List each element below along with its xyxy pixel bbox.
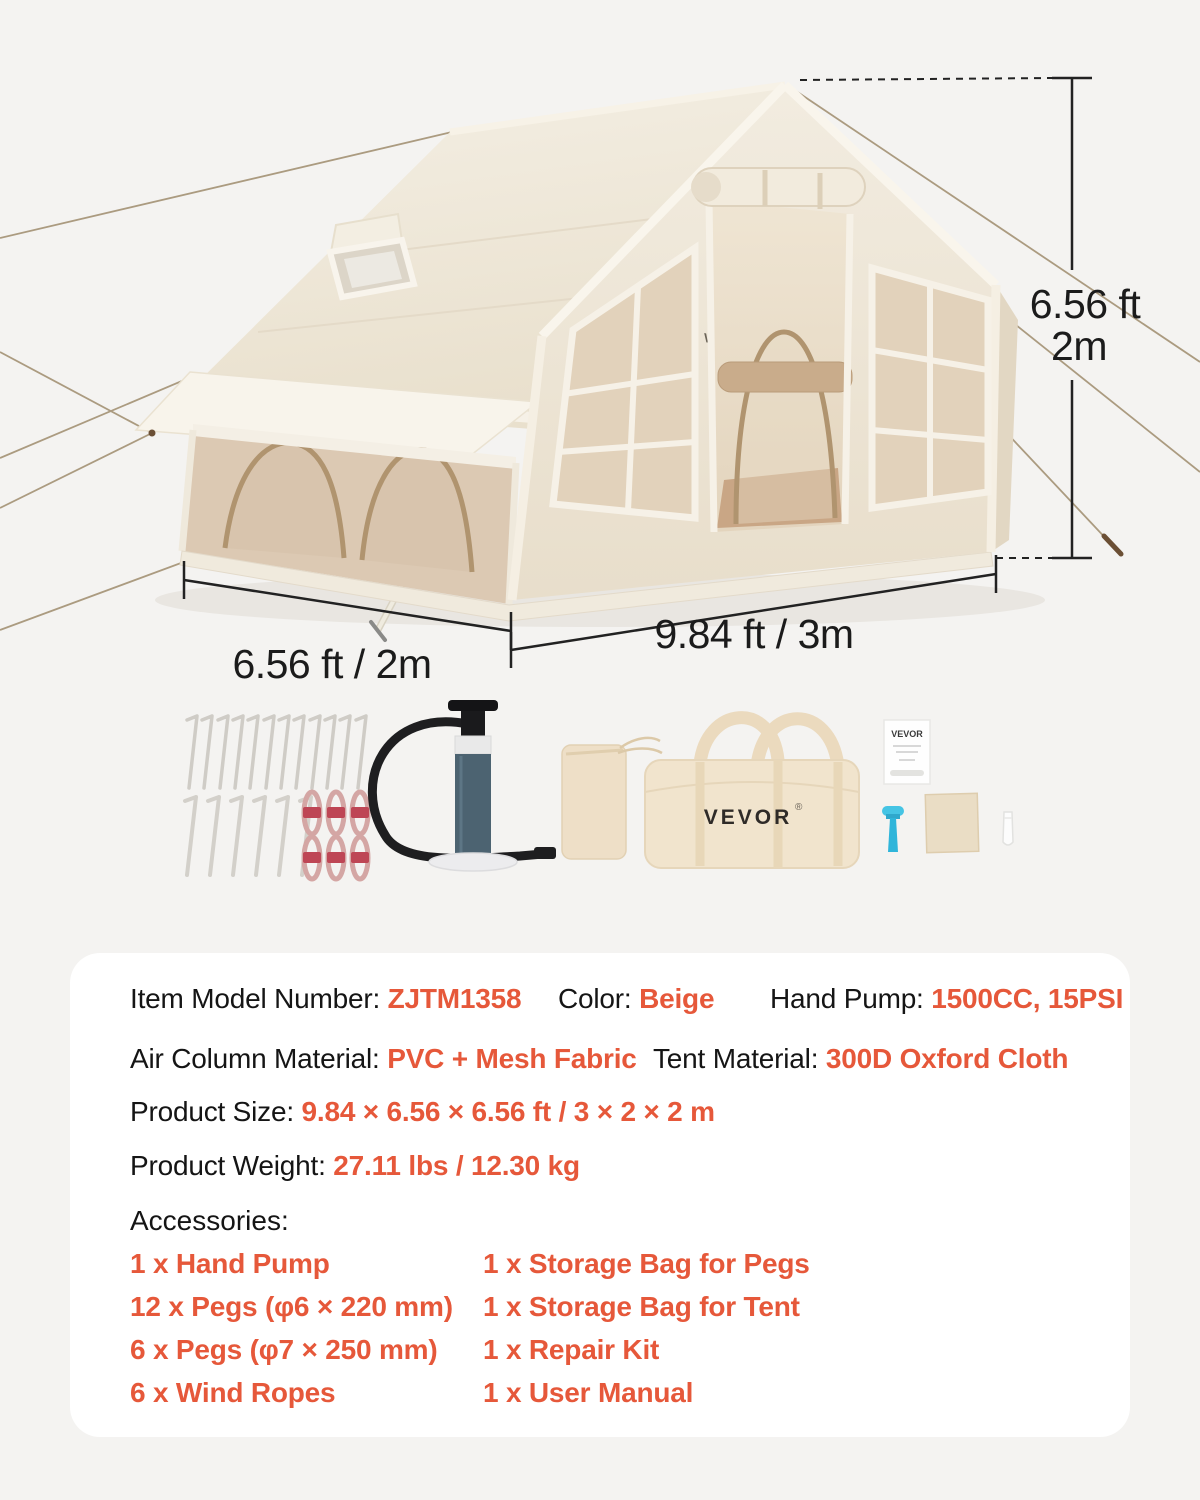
accessory-item: 1 x Storage Bag for Pegs (483, 1248, 810, 1280)
accessory-item: 12 x Pegs (φ6 × 220 mm) (130, 1291, 453, 1323)
front-label: 9.84 ft / 3m (654, 611, 853, 657)
accessory-item: 1 x User Manual (483, 1377, 693, 1409)
spec-panel: Item Model Number: ZJTM1358 Color: Beige… (70, 953, 1130, 1437)
accessory-item: 6 x Wind Ropes (130, 1377, 335, 1409)
height-label-m: 2m (1051, 323, 1107, 369)
repair-patch (925, 793, 979, 852)
accessory-item: 1 x Storage Bag for Tent (483, 1291, 800, 1323)
spec-air-column: Air Column Material: PVC + Mesh Fabric (130, 1043, 637, 1075)
wind-ropes (303, 792, 369, 879)
awning-corner-hook (149, 430, 156, 437)
manual-logo: VEVOR (891, 729, 923, 739)
spec-product-weight: Product Weight: 27.11 lbs / 12.30 kg (130, 1150, 580, 1182)
height-label-ft: 6.56 ft (1030, 281, 1142, 327)
pegs-6 (185, 797, 311, 875)
glue-applicator-stem (888, 818, 898, 852)
tent-storage-bag: VEVOR ® (645, 718, 859, 868)
front-window-right (872, 268, 988, 508)
side-label: 6.56 ft / 2m (232, 641, 431, 687)
bag-logo-reg: ® (795, 802, 803, 813)
tent-door (691, 168, 865, 532)
spec-line-3: Product Size: 9.84 × 6.56 × 6.56 ft / 3 … (70, 1096, 1130, 1132)
hand-pump (372, 700, 556, 871)
spec-color: Color: Beige (558, 983, 714, 1015)
user-manual: VEVOR (884, 720, 930, 784)
product-infographic: VEVOR (0, 0, 1200, 1500)
repair-kit (882, 793, 1013, 852)
right-rope-stake (1104, 536, 1121, 554)
spec-model: Item Model Number: ZJTM1358 (130, 983, 521, 1015)
spec-product-size: Product Size: 9.84 × 6.56 × 6.56 ft / 3 … (130, 1096, 715, 1128)
spec-hand-pump: Hand Pump: 1500CC, 15PSI (770, 983, 1123, 1015)
spec-line-1: Item Model Number: ZJTM1358 Color: Beige… (70, 983, 1130, 1019)
accessory-item: 6 x Pegs (φ7 × 250 mm) (130, 1334, 437, 1366)
spec-line-2: Air Column Material: PVC + Mesh Fabric T… (70, 1043, 1130, 1079)
accessories-heading: Accessories: (130, 1205, 289, 1237)
accessory-item: 1 x Repair Kit (483, 1334, 659, 1366)
door-inner-roll (718, 362, 852, 392)
repair-tube (1003, 812, 1013, 845)
spec-line-4: Product Weight: 27.11 lbs / 12.30 kg (70, 1150, 1130, 1186)
bag-logo: VEVOR (704, 806, 793, 829)
accessory-item: 1 x Hand Pump (130, 1248, 330, 1280)
tent-illustration: VEVOR (0, 0, 1200, 700)
pegs-12 (187, 716, 366, 788)
accessories-photo: VEVOR ® VEVOR (0, 690, 1200, 930)
spec-tent-material: Tent Material: 300D Oxford Cloth (653, 1043, 1068, 1075)
